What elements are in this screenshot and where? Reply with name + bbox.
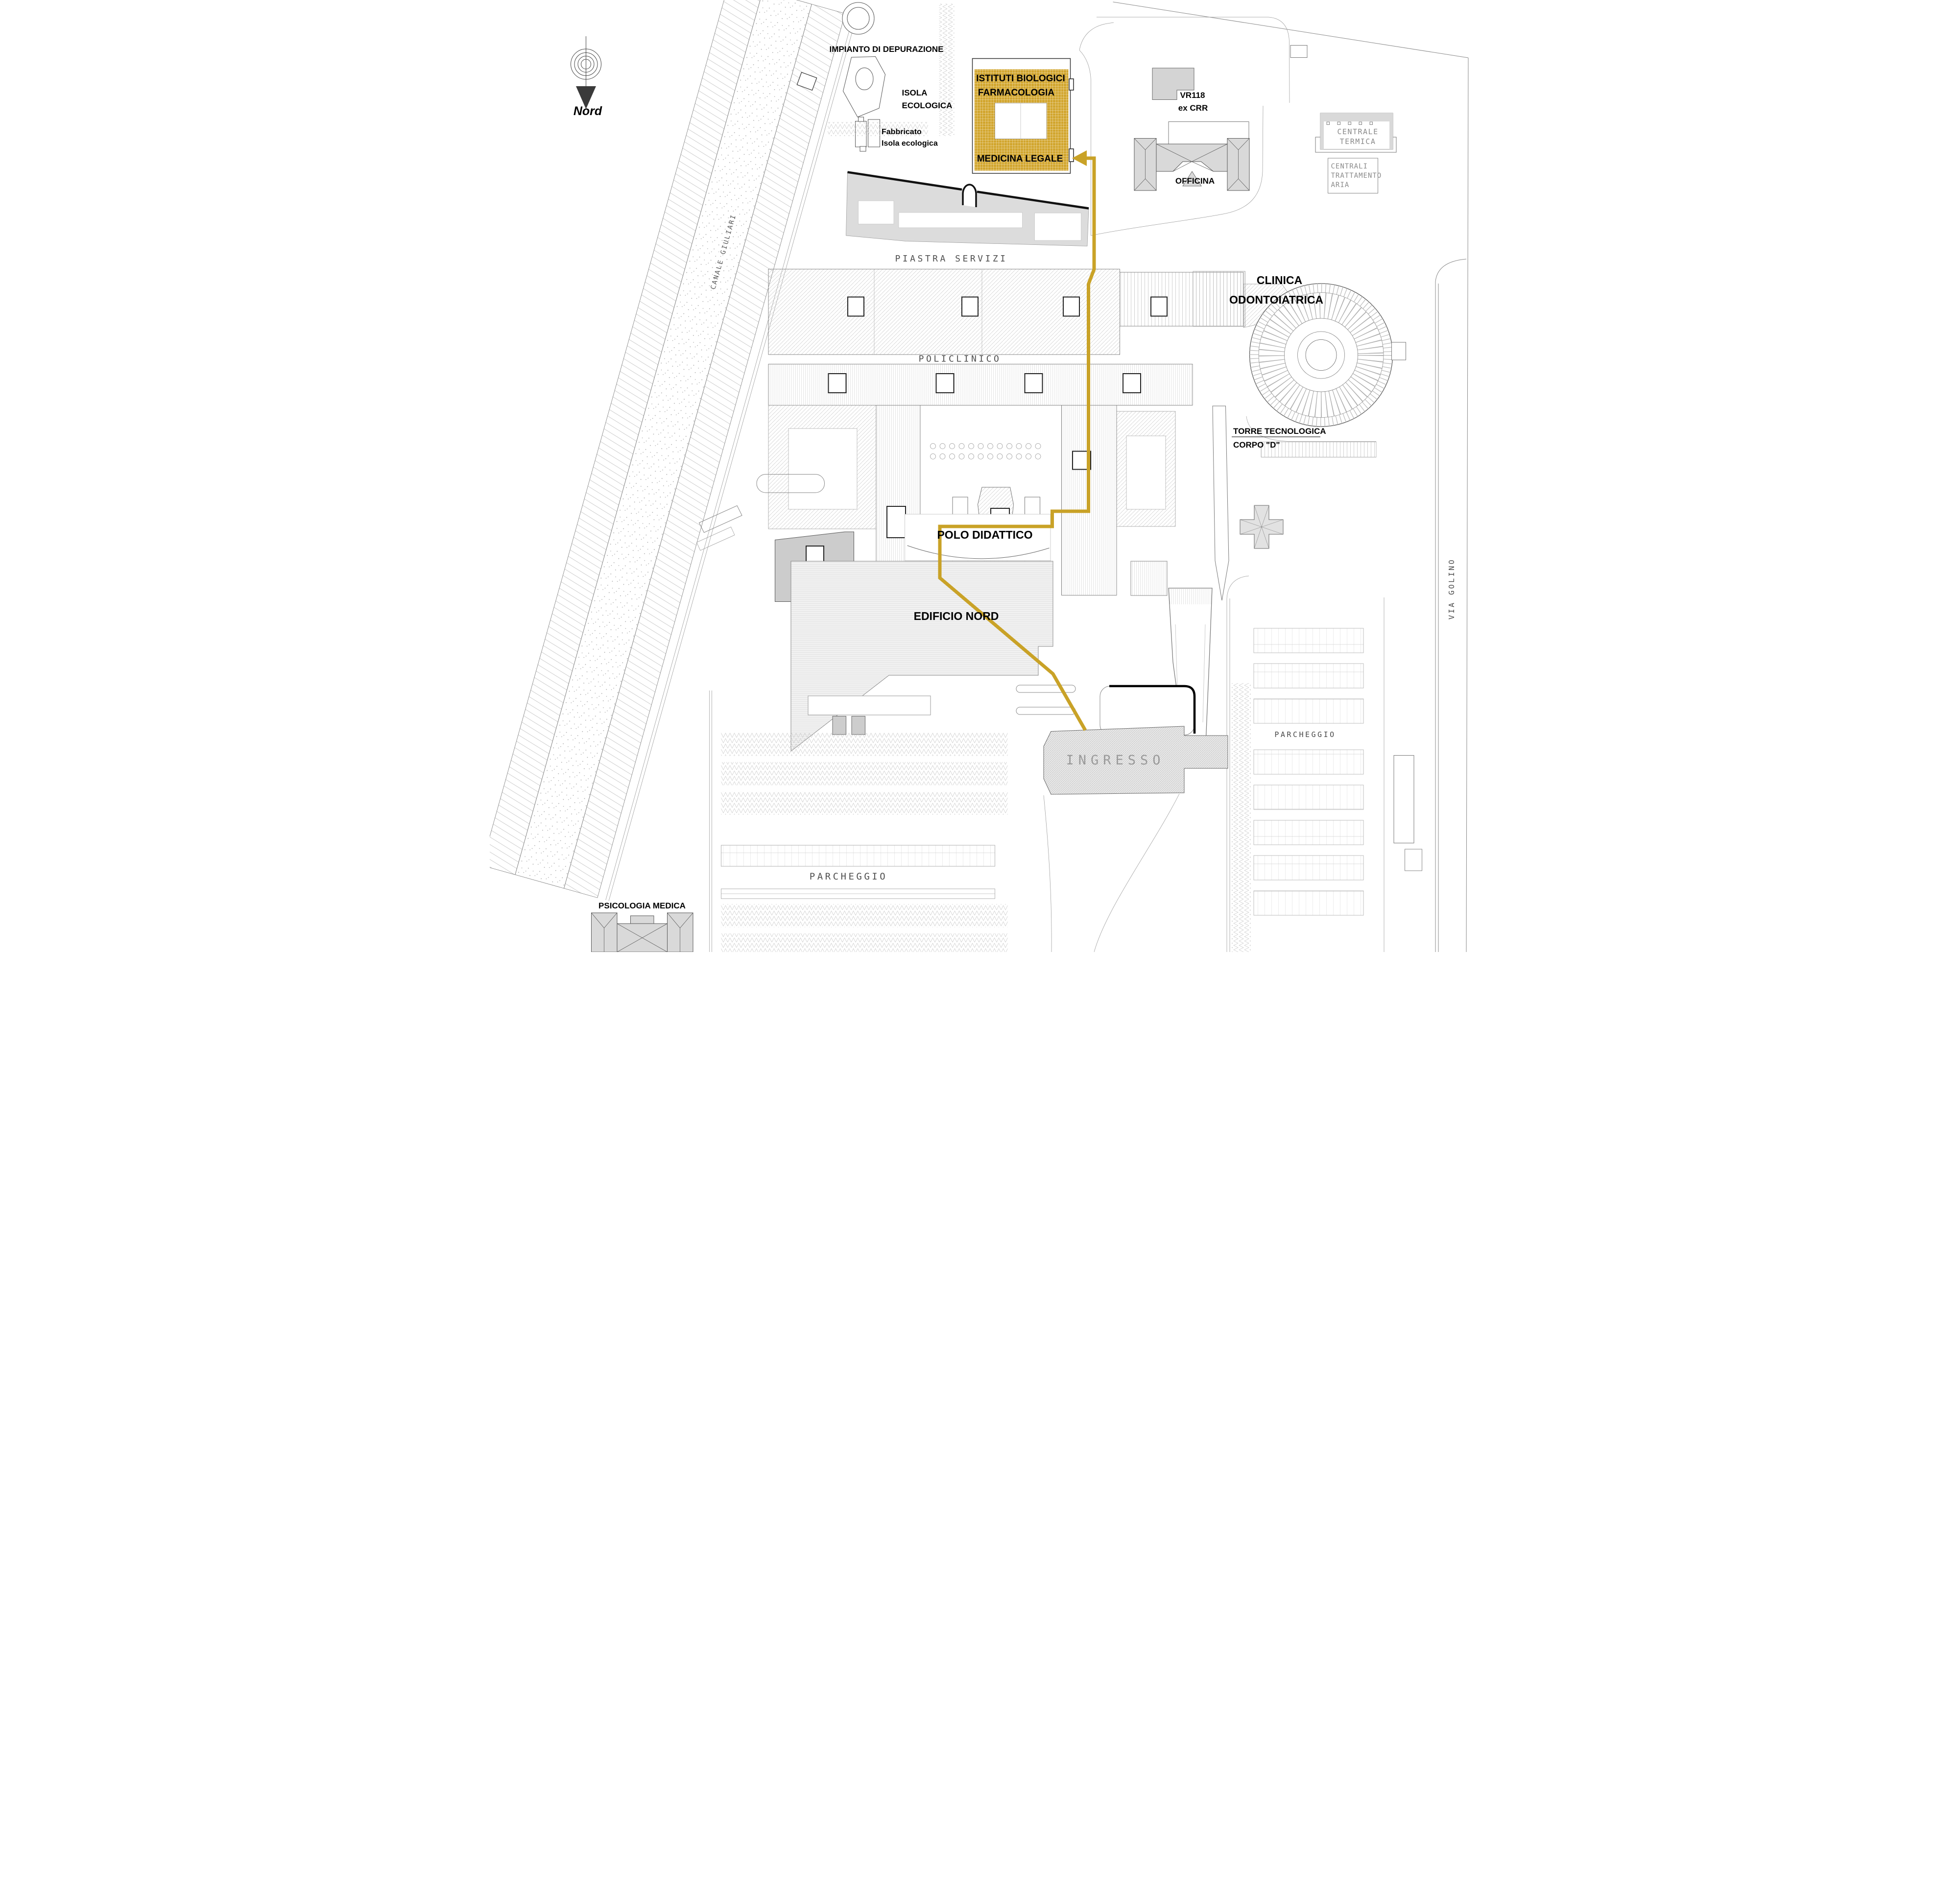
door-tab-icon — [1069, 79, 1074, 90]
cross-roof-building — [1240, 505, 1283, 548]
label-torre-line2: CORPO "D" — [1233, 440, 1280, 450]
label-piastra-servizi: PIASTRA SERVIZI — [895, 254, 1007, 264]
compass-label: Nord — [573, 104, 602, 118]
campus-map: CANALE GIULIARI Nord — [490, 0, 1469, 952]
label-isola-ecologica-2: ECOLOGICA — [902, 101, 953, 110]
label-clinica-2: ODONTOIATRICA — [1229, 293, 1323, 306]
label-officina: OFFICINA — [1175, 176, 1215, 186]
label-farmacologia: FARMACOLOGIA — [978, 88, 1054, 98]
label-policlinico: POLICLINICO — [919, 354, 1002, 364]
label-vr118: VR118 — [1180, 91, 1205, 100]
label-psicologia-medica: PSICOLOGIA MEDICA — [598, 901, 686, 910]
label-ex-crr: ex CRR — [1178, 103, 1208, 113]
label-centrali-3: ARIA — [1331, 181, 1350, 189]
building-policlinico-band — [768, 364, 1193, 405]
parking-east — [1254, 628, 1363, 915]
label-parcheggio-sud: PARCHEGGIO — [810, 871, 887, 882]
label-fabbricato-2: Isola ecologica — [882, 140, 938, 148]
paving-strip-vertical — [939, 4, 955, 136]
building-torre-tecnologica — [1213, 406, 1229, 600]
compass-rose: Nord — [571, 36, 602, 118]
building-service-slab — [846, 172, 1089, 246]
label-impianto-depurazione: IMPIANTO DI DEPURAZIONE — [830, 45, 944, 54]
building-edificio-nord — [791, 561, 1053, 751]
building-east-block — [1131, 561, 1167, 595]
campus-map-page: CANALE GIULIARI Nord — [490, 0, 1469, 952]
label-istituti-biologici: ISTITUTI BIOLOGICI — [976, 73, 1065, 84]
route-arrow-icon — [1072, 150, 1087, 166]
label-edificio-nord: EDIFICIO NORD — [914, 610, 999, 622]
label-centrale-termica-2: TERMICA — [1340, 137, 1376, 146]
label-ingresso: INGRESSO — [1066, 753, 1165, 768]
courtyard-dots — [931, 444, 1041, 459]
label-clinica-1: CLINICA — [1257, 274, 1302, 286]
label-polo-didattico: POLO DIDATTICO — [937, 528, 1032, 541]
label-centrali-2: TRATTAMENTO — [1331, 172, 1382, 180]
label-parcheggio-est: PARCHEGGIO — [1274, 730, 1336, 739]
label-torre-line1: TORRE TECNOLOGICA — [1233, 427, 1326, 436]
door-tab-icon — [1069, 149, 1074, 162]
label-centrale-termica-1: CENTRALE — [1337, 127, 1378, 136]
paving-via-golino — [1232, 683, 1251, 952]
label-fabbricato-1: Fabbricato — [882, 128, 922, 136]
label-centrali-1: CENTRALI — [1331, 163, 1368, 170]
label-medicina-legale: MEDICINA LEGALE — [977, 154, 1063, 164]
building-piastra-servizi — [768, 269, 1243, 355]
label-via-golino: VIA GOLINO — [1447, 558, 1456, 619]
building-psicologia-medica — [592, 913, 693, 952]
label-isola-ecologica-1: ISOLA — [902, 88, 928, 97]
parking-south — [721, 733, 1008, 952]
